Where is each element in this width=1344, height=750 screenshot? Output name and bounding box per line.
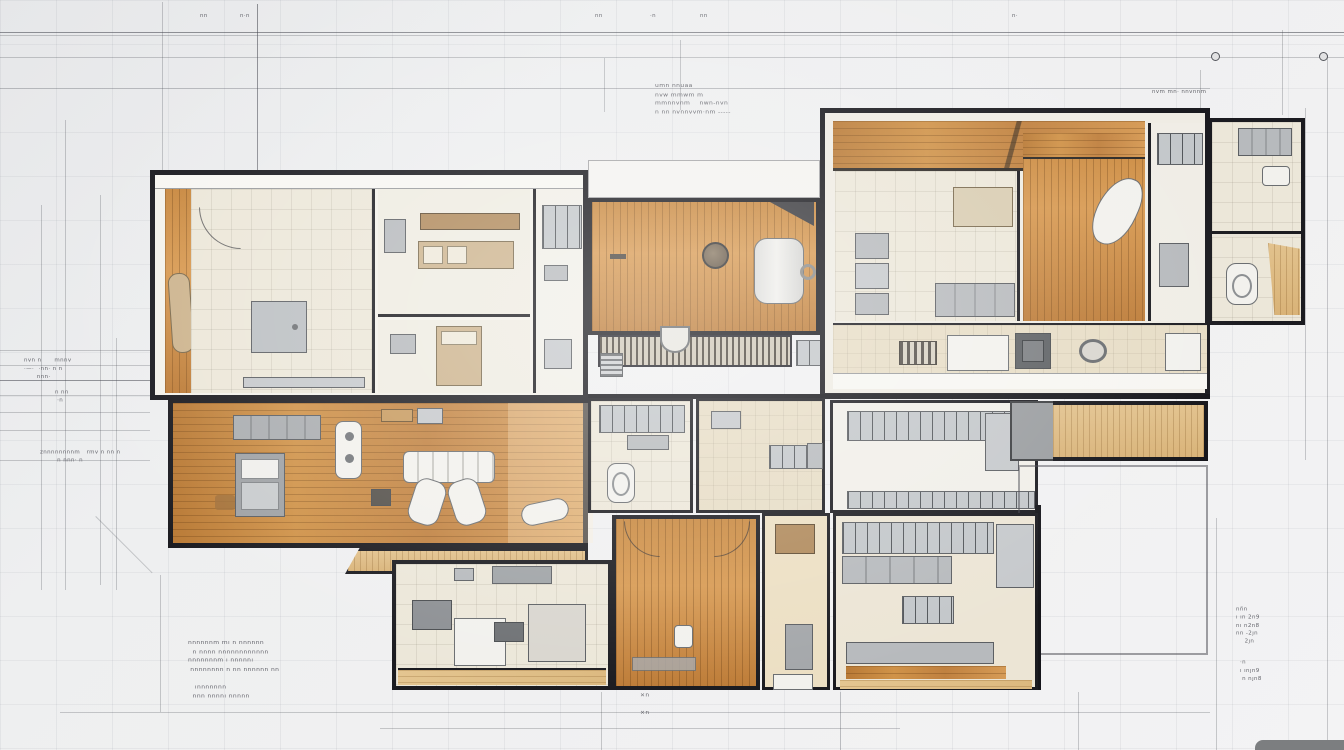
dimension-line bbox=[0, 32, 1344, 33]
dimension-line bbox=[0, 395, 150, 396]
tall-wardrobe bbox=[996, 524, 1034, 588]
pillow bbox=[241, 459, 279, 479]
fridge bbox=[412, 600, 452, 630]
wall-ledge bbox=[381, 409, 413, 422]
tick-label: ·n bbox=[650, 12, 656, 20]
fridge bbox=[1165, 333, 1201, 371]
deck-edge bbox=[840, 680, 1032, 689]
window-band bbox=[842, 522, 994, 554]
stove bbox=[1015, 333, 1051, 369]
dimension-line bbox=[0, 88, 1210, 89]
room-living-wood bbox=[168, 398, 588, 548]
room-entry-wood bbox=[612, 515, 760, 690]
dimension-line bbox=[257, 4, 258, 170]
blueprint-canvas: nn n·n nn ·n nn n· umn nnuaa nvw mmwm m … bbox=[0, 0, 1344, 750]
note-left-mid: znnnnnnnnm rmv n nn n n nnn· n bbox=[40, 449, 121, 465]
toilet-seat bbox=[1232, 274, 1252, 298]
sink bbox=[494, 622, 524, 642]
counter bbox=[947, 335, 1009, 371]
room-bedroom-mid bbox=[830, 400, 1038, 513]
dimension-line bbox=[0, 57, 1344, 58]
annex-bathrooms bbox=[1208, 118, 1305, 325]
sink bbox=[1262, 166, 1290, 186]
dimension-line bbox=[100, 195, 101, 585]
tub-handle bbox=[800, 264, 816, 280]
note-top-right: nvm mn· nnvnnm bbox=[1152, 88, 1206, 96]
window bbox=[902, 596, 954, 624]
corner-shade bbox=[770, 202, 814, 226]
stacked-cabinet bbox=[855, 263, 889, 289]
shelf bbox=[544, 265, 568, 281]
bed bbox=[418, 241, 514, 269]
mat bbox=[632, 657, 696, 671]
pipe-bend bbox=[660, 326, 690, 353]
wood-shelf bbox=[775, 524, 815, 554]
room-bedroom-b bbox=[378, 320, 530, 393]
door-swing-arc bbox=[624, 521, 660, 557]
vent-grille bbox=[600, 353, 623, 377]
side-table bbox=[371, 489, 391, 506]
dimension-line bbox=[0, 365, 150, 366]
wall-cabinet bbox=[454, 568, 474, 581]
note-bottom-center: ×n ×n bbox=[640, 691, 650, 717]
window-band-bottom bbox=[847, 491, 1035, 509]
room-bedroom-bottom bbox=[833, 513, 1038, 690]
dimension-line bbox=[41, 205, 42, 590]
terrace-wood-band bbox=[1053, 401, 1208, 461]
dimension-line bbox=[840, 692, 841, 750]
stacked-cabinet bbox=[855, 233, 889, 259]
dimension-line bbox=[601, 692, 602, 750]
dimension-line bbox=[0, 430, 150, 431]
bench bbox=[953, 187, 1013, 227]
dimension-line bbox=[1216, 518, 1217, 750]
dimension-line bbox=[160, 575, 161, 712]
cabinet bbox=[544, 339, 572, 369]
room-bath-upper bbox=[1212, 122, 1301, 234]
daybed bbox=[235, 453, 285, 517]
knob bbox=[345, 454, 354, 463]
wall-fixture bbox=[610, 254, 626, 259]
closet-row bbox=[842, 556, 952, 584]
wall-switch bbox=[674, 625, 693, 648]
step-box bbox=[773, 674, 813, 690]
kitchen-corridor bbox=[833, 323, 1207, 373]
knob bbox=[345, 432, 354, 441]
dimension-line bbox=[1282, 30, 1283, 115]
dresser bbox=[390, 334, 416, 354]
toilet bbox=[1226, 263, 1258, 305]
toilet-seat bbox=[612, 472, 630, 496]
door-swing-arc bbox=[199, 207, 241, 249]
dimension-line bbox=[65, 120, 66, 590]
wall-box bbox=[417, 408, 443, 424]
wood-wedge bbox=[1268, 243, 1300, 315]
dimension-line bbox=[60, 712, 1210, 713]
window bbox=[542, 205, 582, 249]
dimension-line bbox=[0, 35, 1344, 36]
room-kitchen bbox=[392, 560, 612, 690]
window-band bbox=[599, 405, 685, 433]
dimension-node bbox=[1211, 52, 1220, 61]
pillow bbox=[423, 246, 443, 264]
vanity bbox=[1238, 128, 1292, 156]
vent-grille bbox=[899, 341, 937, 365]
floor-panel bbox=[251, 301, 307, 353]
note-bottom-right-lower: ·n ı ınȷn9 n nȷn8 bbox=[1240, 659, 1262, 683]
note-bottom-right-upper: nn̈n ı ın 2n9 nı n2n8 nn -2ȷn 2ȷn bbox=[1236, 606, 1260, 646]
room-study bbox=[696, 398, 825, 513]
counter bbox=[627, 435, 669, 450]
room-dressing-wood bbox=[1023, 133, 1145, 321]
note-left-upper: nvn n mnnv ·—· ·nn· n n nnn· bbox=[24, 357, 72, 381]
door-swing-arc bbox=[714, 521, 750, 557]
room-bedroom-a bbox=[378, 189, 530, 317]
sofa-back-cushions bbox=[403, 451, 495, 483]
room-bath-lower bbox=[1212, 237, 1301, 321]
stove-top bbox=[1022, 340, 1044, 362]
wall-cabinet-long bbox=[492, 566, 552, 584]
tick-label: nn bbox=[595, 12, 603, 20]
corner-smudge bbox=[1255, 740, 1344, 750]
armchair bbox=[785, 624, 813, 670]
stair-block bbox=[1010, 401, 1055, 461]
sink-basin bbox=[1079, 339, 1107, 363]
room-side-column bbox=[1148, 123, 1205, 321]
threshold-strip bbox=[243, 377, 365, 388]
deck-floor-strip bbox=[398, 668, 606, 685]
rug-small bbox=[215, 495, 235, 510]
dimension-line bbox=[162, 2, 163, 170]
dimension-line bbox=[1305, 108, 1306, 460]
console-cabinet bbox=[335, 421, 362, 479]
panel-knob bbox=[292, 324, 298, 330]
terrace-outline bbox=[1018, 465, 1208, 655]
pillow bbox=[447, 246, 467, 264]
dimension-line bbox=[1078, 692, 1079, 750]
tick-label: n· bbox=[1012, 12, 1018, 20]
dimension-line bbox=[380, 728, 900, 729]
bed bbox=[436, 326, 482, 386]
room-utility bbox=[835, 171, 1020, 321]
dimension-line bbox=[0, 412, 150, 413]
room-tiled-hall bbox=[191, 189, 375, 393]
shelf-unit bbox=[233, 415, 321, 440]
mattress bbox=[241, 482, 279, 510]
dimension-line bbox=[604, 58, 605, 112]
wood-step bbox=[846, 666, 1006, 679]
note-left-lower: n nn ·n bbox=[55, 389, 69, 405]
right-wing bbox=[820, 108, 1210, 398]
window bbox=[1157, 133, 1203, 165]
exterior-ledge bbox=[588, 160, 820, 198]
note-top-center: umn nnuaa nvw mmwm m mmnnvnm nwn-nvn n n… bbox=[655, 82, 731, 117]
cabinet bbox=[711, 411, 741, 429]
room-closet-narrow bbox=[762, 513, 830, 690]
cabinet bbox=[1159, 243, 1189, 287]
dimension-line bbox=[95, 516, 152, 573]
tick-label: nn bbox=[700, 12, 708, 20]
room-studio-wood bbox=[588, 198, 820, 335]
sofa-seat-right bbox=[445, 475, 490, 529]
bed-platform bbox=[846, 642, 994, 664]
sofa-seat-left bbox=[405, 475, 450, 529]
floor-drain bbox=[702, 242, 729, 269]
tick-label: n·n bbox=[240, 12, 250, 20]
lounge-chair bbox=[1084, 170, 1150, 252]
wall-cavity bbox=[155, 175, 583, 189]
dimension-node bbox=[1319, 52, 1328, 61]
shelf bbox=[807, 443, 823, 469]
dimension-line bbox=[0, 350, 150, 351]
wood-ceiling-band bbox=[1023, 133, 1145, 159]
bathtub bbox=[754, 238, 804, 304]
dimension-line bbox=[1327, 55, 1328, 750]
window bbox=[769, 445, 807, 469]
note-bottom-left: nnnnnnm mı n nnnnnn n nnnn nnnnnnnnnnnn … bbox=[188, 639, 279, 701]
dimension-line bbox=[0, 380, 150, 381]
tick-label: nn bbox=[200, 12, 208, 20]
dresser-row bbox=[935, 283, 1015, 317]
room-wc bbox=[588, 398, 693, 513]
toilet bbox=[607, 463, 635, 503]
nightstand bbox=[384, 219, 406, 253]
hall-strip bbox=[833, 373, 1207, 389]
left-wing bbox=[150, 170, 588, 400]
room-closet-column bbox=[533, 189, 583, 393]
wardrobe bbox=[420, 213, 520, 230]
pillow bbox=[441, 331, 477, 345]
counter-l bbox=[528, 604, 586, 662]
stacked-cabinet bbox=[855, 293, 889, 315]
counter-hatch bbox=[598, 335, 792, 367]
